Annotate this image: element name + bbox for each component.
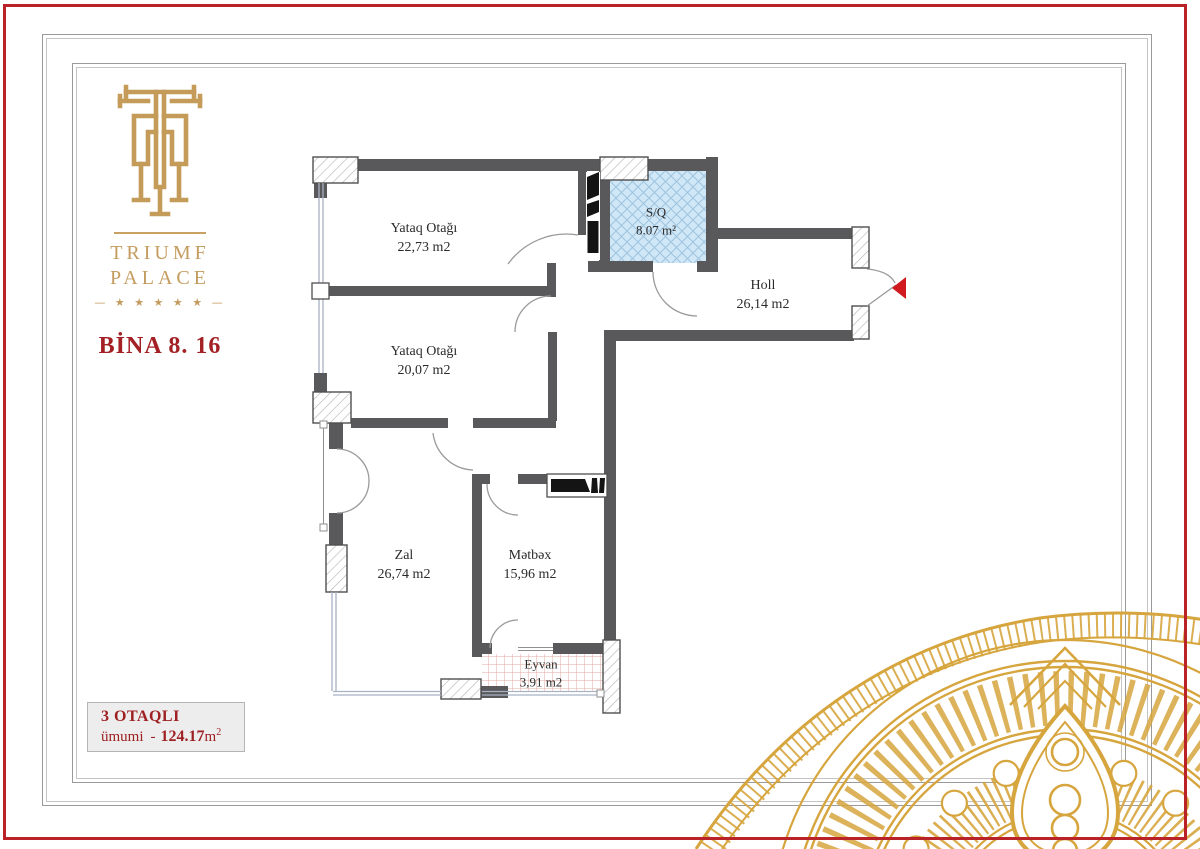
- room-name: Zal: [378, 547, 431, 566]
- room-area: 20,07 m2: [391, 362, 458, 381]
- summary-total-value: 124.17: [161, 728, 205, 745]
- brand-divider: [114, 232, 206, 234]
- page: TRIUMF PALACE — ★ ★ ★ ★ ★ — BİNA 8. 16 Y…: [0, 0, 1200, 849]
- room-label-zal: Zal 26,74 m2: [378, 547, 431, 585]
- logo-spacer: [60, 84, 260, 226]
- room-name: Mətbəx: [504, 547, 557, 566]
- room-label-yataq1: Yataq Otağı 22,73 m2: [391, 220, 458, 258]
- door-arc-zal-balcony: [337, 449, 369, 513]
- summary-total-label: ümumi: [101, 729, 144, 745]
- room-name: Yataq Otağı: [391, 343, 458, 362]
- mandala-decoration: [696, 613, 1200, 849]
- brand-name-line2: PALACE: [60, 266, 260, 291]
- entrance-pillar-lower: [852, 306, 869, 339]
- room-area: 8.07 m²: [636, 221, 676, 239]
- room-name: Holl: [737, 277, 790, 296]
- window-block-mid-left: [313, 392, 351, 423]
- window-connector-square: [312, 283, 329, 299]
- room-label-sq: S/Q 8.07 m²: [636, 203, 676, 238]
- window-block-zal-left: [326, 545, 347, 592]
- room-area: 26,74 m2: [378, 566, 431, 585]
- building-title: BİNA 8. 16: [60, 333, 260, 360]
- summary-unit: m: [205, 729, 217, 745]
- entrance-pillar-upper: [852, 227, 869, 268]
- summary-rooms-count: 3 OTAQLI: [101, 708, 244, 726]
- room-area: 15,96 m2: [504, 566, 557, 585]
- brand-name-line1: TRIUMF: [60, 241, 260, 266]
- summary-total-area: ümumi-124.17m2: [101, 727, 244, 746]
- door-arc-metbex: [487, 484, 518, 515]
- room-name: Yataq Otağı: [391, 220, 458, 239]
- door-arcs-layer: [337, 234, 896, 648]
- brand-block: TRIUMF PALACE — ★ ★ ★ ★ ★ — BİNA 8. 16: [60, 84, 260, 360]
- door-arc-eyvan: [490, 620, 518, 648]
- room-area: 26,14 m2: [737, 296, 790, 315]
- door-arc-entrance: [867, 269, 895, 283]
- room-name: Eyvan: [520, 655, 563, 673]
- vent-block-sq-top: [600, 157, 648, 180]
- door-arc-yataq2: [515, 296, 551, 332]
- window-block-eyvan-right: [603, 640, 620, 713]
- door-leaf-entrance: [867, 285, 896, 306]
- door-arc-vestibule: [433, 433, 473, 470]
- window-block-top-left: [313, 157, 358, 183]
- room-label-eyvan: Eyvan 3,91 m2: [520, 655, 563, 690]
- window-block-zal-eyvan: [441, 679, 481, 699]
- room-label-yataq2: Yataq Otağı 20,07 m2: [391, 343, 458, 381]
- door-arc-yataq1: [508, 234, 578, 264]
- summary-separator: -: [151, 729, 156, 745]
- summary-box: 3 OTAQLI ümumi-124.17m2: [87, 702, 245, 752]
- glazing-layer: [319, 183, 603, 695]
- door-arc-sq: [653, 272, 697, 316]
- room-label-holl: Holl 26,14 m2: [737, 277, 790, 315]
- room-area: 22,73 m2: [391, 239, 458, 258]
- room-name: S/Q: [636, 203, 676, 221]
- brand-stars: — ★ ★ ★ ★ ★ —: [60, 296, 260, 309]
- room-area: 3,91 m2: [520, 673, 563, 691]
- summary-unit-exponent: 2: [216, 727, 221, 738]
- room-label-metbex: Mətbəx 15,96 m2: [504, 547, 557, 585]
